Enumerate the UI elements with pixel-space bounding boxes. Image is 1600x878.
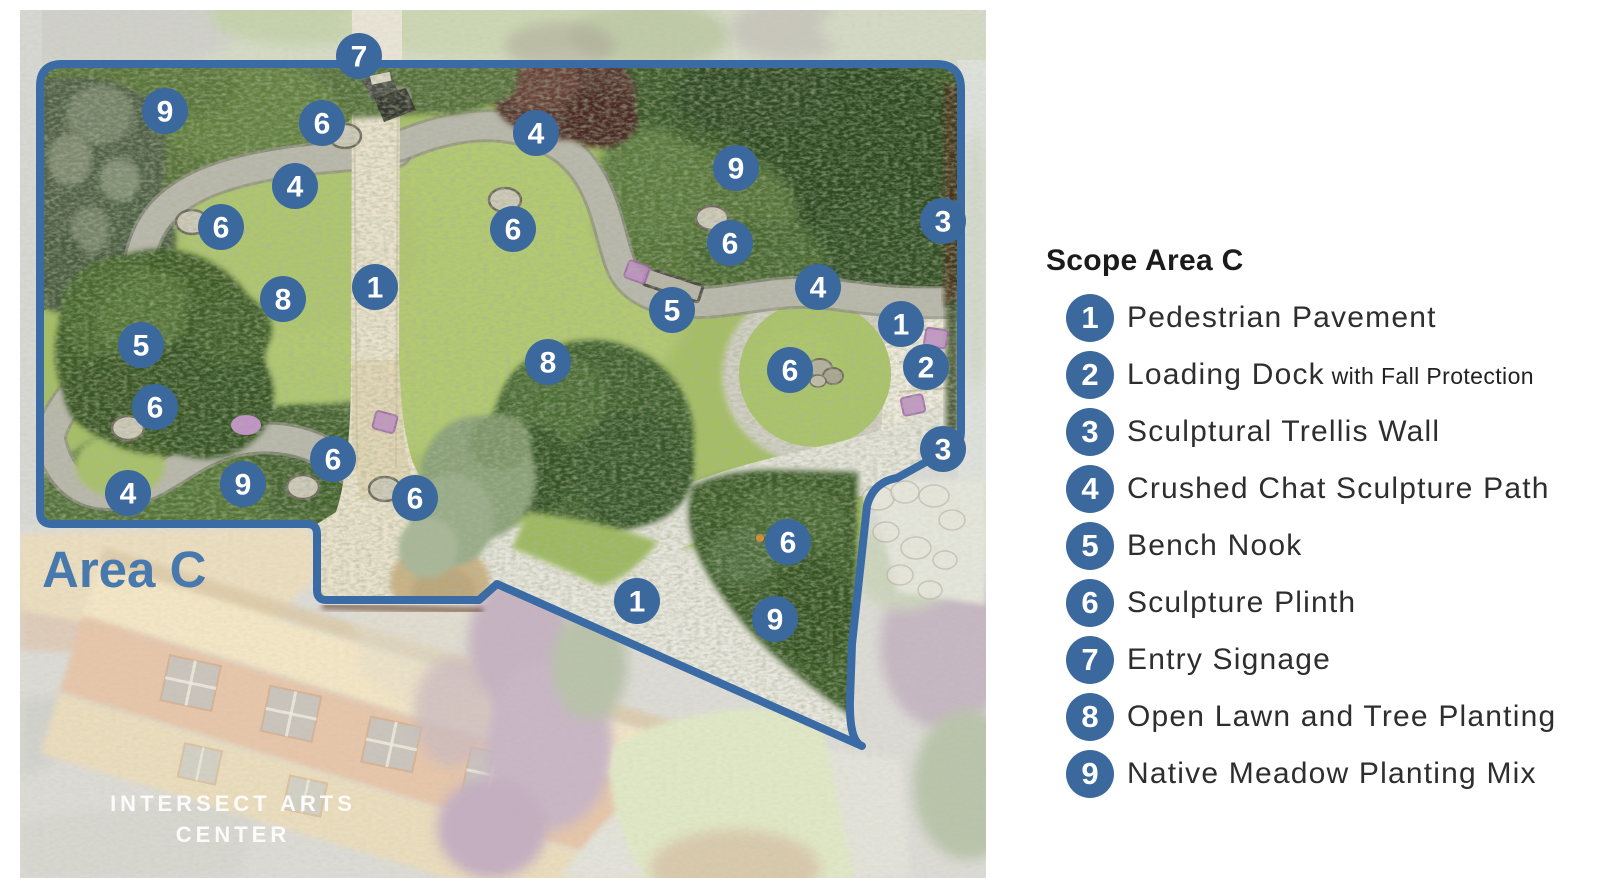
svg-text:5: 5 <box>664 295 681 328</box>
svg-text:6: 6 <box>782 355 799 388</box>
svg-text:Area C: Area C <box>42 541 206 598</box>
svg-text:1: 1 <box>367 272 384 305</box>
svg-text:CENTER: CENTER <box>176 822 290 847</box>
svg-text:4: 4 <box>287 171 304 204</box>
svg-text:1: 1 <box>893 309 910 342</box>
svg-text:6: 6 <box>147 392 164 425</box>
svg-text:5: 5 <box>133 330 150 363</box>
svg-text:1: 1 <box>629 586 646 619</box>
svg-text:9: 9 <box>728 153 745 186</box>
svg-text:INTERSECT ARTS: INTERSECT ARTS <box>110 791 356 816</box>
svg-text:6: 6 <box>780 527 797 560</box>
svg-text:3: 3 <box>935 434 952 467</box>
svg-text:4: 4 <box>528 118 545 151</box>
svg-text:8: 8 <box>540 347 557 380</box>
svg-text:4: 4 <box>120 478 137 511</box>
svg-text:6: 6 <box>325 444 342 477</box>
svg-text:6: 6 <box>314 108 331 141</box>
svg-text:6: 6 <box>213 212 230 245</box>
svg-text:6: 6 <box>505 214 522 247</box>
svg-text:2: 2 <box>918 352 935 385</box>
svg-text:7: 7 <box>351 41 368 74</box>
svg-text:4: 4 <box>810 272 827 305</box>
svg-text:3: 3 <box>935 206 952 239</box>
svg-text:9: 9 <box>235 469 252 502</box>
svg-text:9: 9 <box>157 96 174 129</box>
svg-text:6: 6 <box>407 483 424 516</box>
svg-text:9: 9 <box>767 604 784 637</box>
svg-text:8: 8 <box>275 284 292 317</box>
svg-text:6: 6 <box>722 228 739 261</box>
